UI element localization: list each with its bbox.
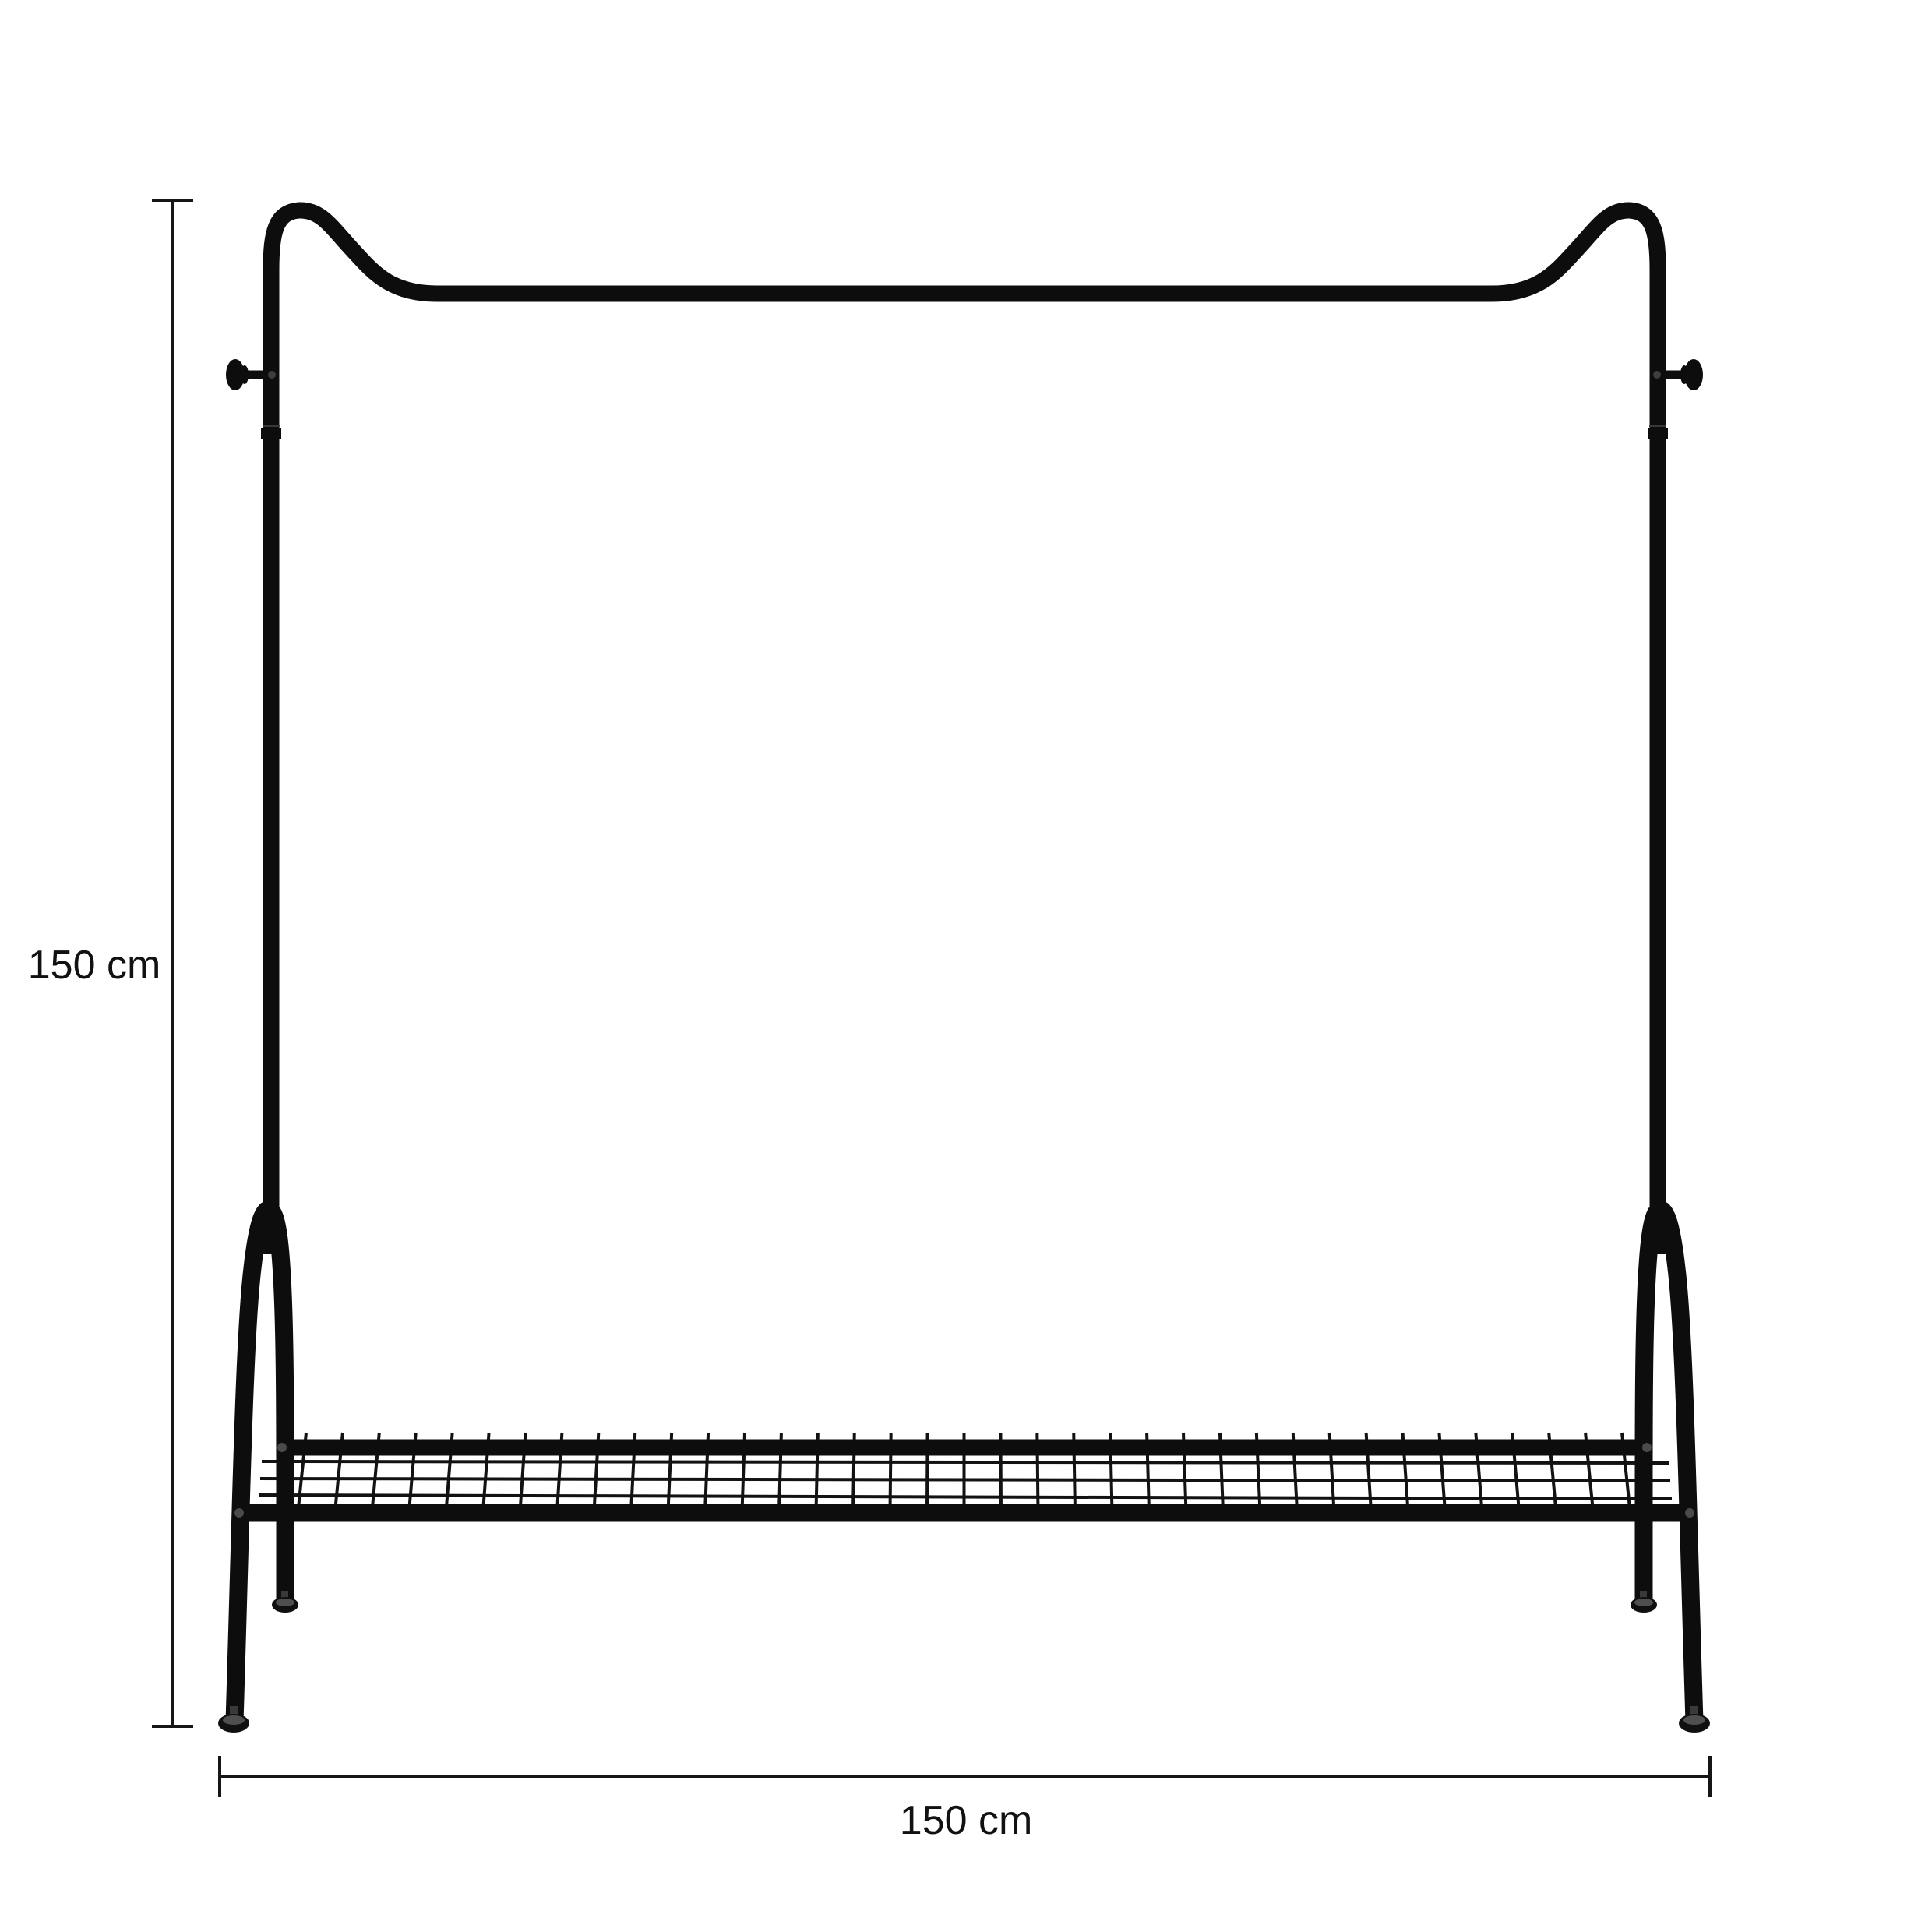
- screw: [1642, 1443, 1652, 1452]
- product-diagram-canvas: 150 cm 150 cm: [0, 0, 1932, 1932]
- hook-knob: [226, 359, 245, 390]
- mesh-wire-horizontal: [259, 1495, 1672, 1499]
- mesh-wire-horizontal: [262, 1461, 1669, 1463]
- height-dimension-label: 150 cm: [28, 943, 161, 988]
- foot-back-right: [1631, 1591, 1657, 1613]
- width-dimension: 150 cm: [220, 1756, 1710, 1843]
- foot-highlight: [276, 1599, 294, 1606]
- hook-screw: [268, 371, 276, 379]
- right-leg-arch: [1644, 1210, 1694, 1722]
- hook-screw: [1653, 371, 1661, 379]
- left-upright-joint: [261, 425, 281, 439]
- joint-seam: [1649, 425, 1666, 427]
- joint-collar: [1648, 428, 1668, 439]
- clothes-rack: [218, 210, 1710, 1733]
- hook-knob: [1684, 359, 1703, 390]
- joint-collar: [261, 428, 281, 439]
- left-leg-arch: [234, 1210, 285, 1722]
- right-upright-joint: [1648, 425, 1668, 439]
- foot-highlight: [223, 1715, 245, 1725]
- width-dimension-label: 150 cm: [900, 1798, 1033, 1843]
- screw: [1685, 1508, 1694, 1518]
- hanging-rail-and-uprights: [271, 210, 1658, 1254]
- rack-diagram-svg: 150 cm 150 cm: [0, 0, 1932, 1932]
- foot-front-left: [218, 1706, 249, 1733]
- height-dimension: 150 cm: [28, 200, 193, 1726]
- foot-highlight: [1683, 1715, 1705, 1725]
- foot-back-left: [272, 1591, 298, 1613]
- screw: [277, 1443, 287, 1452]
- foot-front-right: [1679, 1706, 1710, 1733]
- foot-highlight: [1634, 1599, 1653, 1606]
- screw: [234, 1508, 244, 1518]
- mesh-wire-horizontal: [260, 1479, 1670, 1481]
- joint-seam: [263, 425, 280, 427]
